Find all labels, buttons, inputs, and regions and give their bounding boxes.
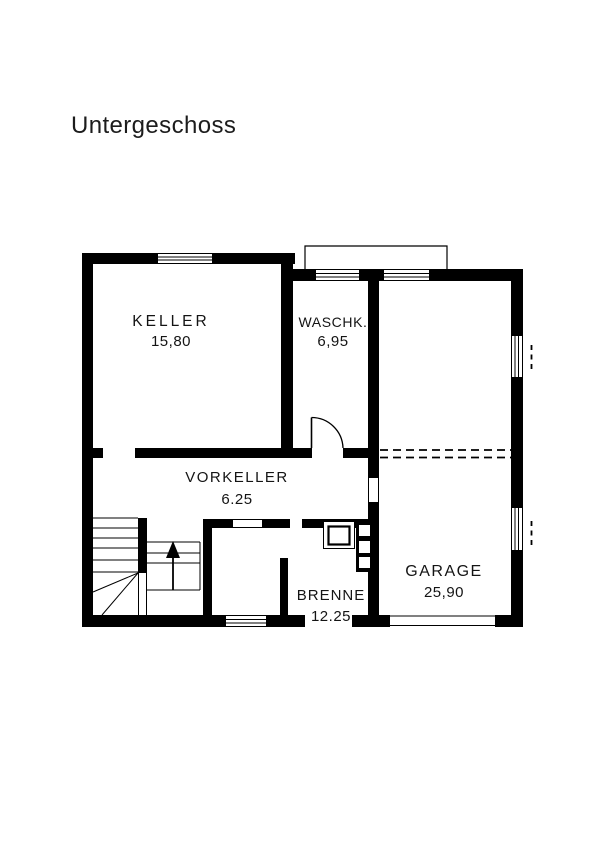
room-area: 25,90 [384, 582, 504, 603]
room-name: WASCHK. [283, 313, 383, 332]
window-waschk-top [316, 270, 360, 281]
wall-right [511, 269, 523, 627]
room-area: 6,95 [283, 332, 383, 351]
shaft-symbol [324, 522, 355, 549]
stair-winder-line [93, 573, 138, 592]
wall-left [82, 253, 93, 627]
window-garage-right-upper [512, 336, 523, 378]
room-label-garage: GARAGE 25,90 [384, 561, 504, 603]
door-waschk [312, 418, 344, 449]
window-garage-right-lower [512, 508, 523, 551]
chimney-flue [359, 525, 370, 536]
room-area: 15,80 [106, 332, 236, 352]
window-keller-top [158, 254, 213, 264]
pass-through-opening [233, 519, 262, 528]
wall-lower-b [262, 519, 290, 528]
window-garage-top [384, 270, 430, 281]
stairs [93, 518, 200, 615]
wall-vorkeller-top [135, 448, 293, 458]
door-opening-garage-room [368, 478, 379, 502]
chimney-flue [359, 557, 370, 568]
floorplan-drawing [0, 0, 601, 850]
wall-stub-left [93, 448, 103, 458]
chimney [356, 519, 379, 572]
wall-leftroom [203, 519, 212, 627]
stair-treads-left [93, 518, 138, 572]
stair-wall-bar [138, 518, 147, 573]
room-area: 6.25 [172, 489, 302, 511]
door-opening-keller [103, 448, 135, 458]
room-label-brenne: BRENNE 12.25 [281, 585, 381, 627]
room-label-vorkeller: VORKELLER 6.25 [172, 467, 302, 511]
room-name: BRENNE [281, 585, 381, 606]
stair-winder-line [102, 573, 138, 615]
door-swing-arc [312, 418, 344, 449]
room-name: GARAGE [384, 561, 504, 582]
room-label-keller: KELLER 15,80 [106, 312, 236, 352]
wall-waschk-bottom-right [343, 448, 369, 458]
wall-divider-keller-waschk [281, 253, 293, 458]
room-name: KELLER [106, 312, 236, 332]
floorplan-page: Untergeschoss [0, 0, 601, 850]
light-well-outline [305, 246, 447, 269]
chimney-flue [359, 541, 370, 553]
arrow-head [166, 541, 180, 558]
room-label-waschk: WASCHK. 6,95 [283, 313, 383, 351]
wall-waschk-bottom-left [293, 448, 312, 458]
beam-dashed-lines [380, 450, 511, 458]
window-bottom [226, 616, 267, 627]
door-opening-lower [290, 519, 302, 528]
room-area: 12.25 [281, 606, 381, 627]
room-name: VORKELLER [172, 467, 302, 489]
stair-direction-arrow [166, 541, 180, 590]
